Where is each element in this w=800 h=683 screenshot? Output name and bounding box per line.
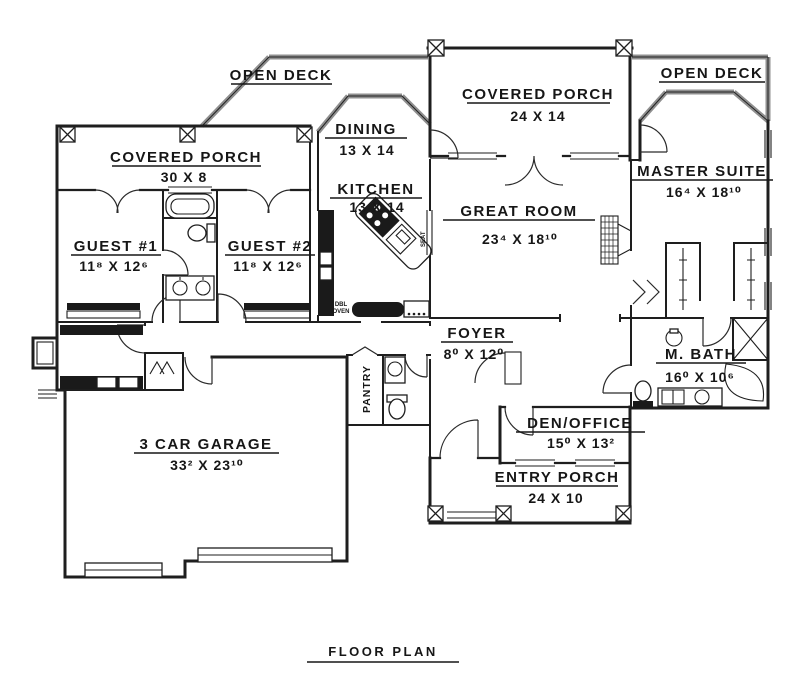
label-seat: SEAT (421, 231, 427, 247)
label-great-room: GREAT ROOM (460, 203, 577, 220)
label-entry-porch: ENTRY PORCH (495, 469, 620, 486)
label-guest-2: GUEST #2 (228, 238, 313, 255)
guest-closets (67, 303, 310, 318)
room-labels: OPEN DECK COVERED PORCH 30 X 8 DINING 13… (74, 65, 767, 659)
dims-covered-porch-left: 30 X 8 (161, 169, 207, 185)
floor-plan-page: OPEN DECK COVERED PORCH 30 X 8 DINING 13… (0, 0, 800, 683)
entry-porch-railing (447, 512, 496, 518)
dims-entry-porch: 24 X 10 (528, 490, 583, 506)
label-master-bath: M. BATH (665, 346, 737, 363)
label-guest-1: GUEST #1 (74, 238, 159, 255)
label-covered-porch-top: COVERED PORCH (462, 86, 614, 103)
drawing-title: FLOOR PLAN (328, 644, 438, 659)
label-master-suite: MASTER SUITE (637, 163, 767, 180)
dims-foyer: 8⁰ X 12⁰ (444, 346, 505, 362)
label-open-deck-left: OPEN DECK (230, 67, 333, 84)
dims-den-office: 15⁰ X 13² (547, 435, 615, 451)
dims-master-suite: 16⁴ X 18¹⁰ (666, 184, 742, 200)
garage-doors (85, 548, 332, 577)
label-covered-porch-left: COVERED PORCH (110, 149, 262, 166)
double-vanity (166, 276, 214, 300)
dims-guest-2: 11⁸ X 12⁶ (233, 258, 303, 274)
vanity (658, 388, 722, 406)
label-den-office: DEN/OFFICE (527, 415, 633, 432)
fireplace-bumpout (37, 342, 53, 364)
stair-hatch (601, 216, 631, 264)
label-dbl: DBL (335, 302, 348, 308)
toilet (188, 224, 215, 242)
exterior-steps (38, 390, 57, 398)
label-open-deck-right: OPEN DECK (661, 65, 764, 82)
dims-covered-porch-top: 24 X 14 (510, 108, 565, 124)
dims-great-room: 23⁴ X 18¹⁰ (482, 231, 558, 247)
closet-hangers (150, 362, 174, 374)
label-dining: DINING (335, 121, 397, 138)
label-garage: 3 CAR GARAGE (139, 436, 272, 453)
foyer-coat-closet (505, 352, 521, 384)
dims-garage: 33² X 23¹⁰ (170, 457, 244, 473)
label-kitchen: KITCHEN (337, 181, 414, 198)
label-pantry: PANTRY (361, 365, 373, 413)
label-foyer: FOYER (447, 325, 506, 342)
corner-shower (733, 318, 768, 360)
floor-plan-drawing: OPEN DECK COVERED PORCH 30 X 8 DINING 13… (0, 0, 800, 683)
washer (97, 377, 116, 388)
dims-dining: 13 X 14 (339, 142, 394, 158)
closet-rods (679, 248, 755, 310)
powder-room (385, 357, 407, 419)
toilet (635, 381, 651, 401)
label-oven: OVEN (332, 309, 349, 315)
dims-master-bath: 16⁰ X 10⁶ (665, 369, 735, 385)
dims-kitchen: 13 X 14 (349, 199, 404, 215)
dryer (119, 377, 138, 388)
range (404, 301, 429, 317)
dims-guest-1: 11⁸ X 12⁶ (79, 258, 149, 274)
